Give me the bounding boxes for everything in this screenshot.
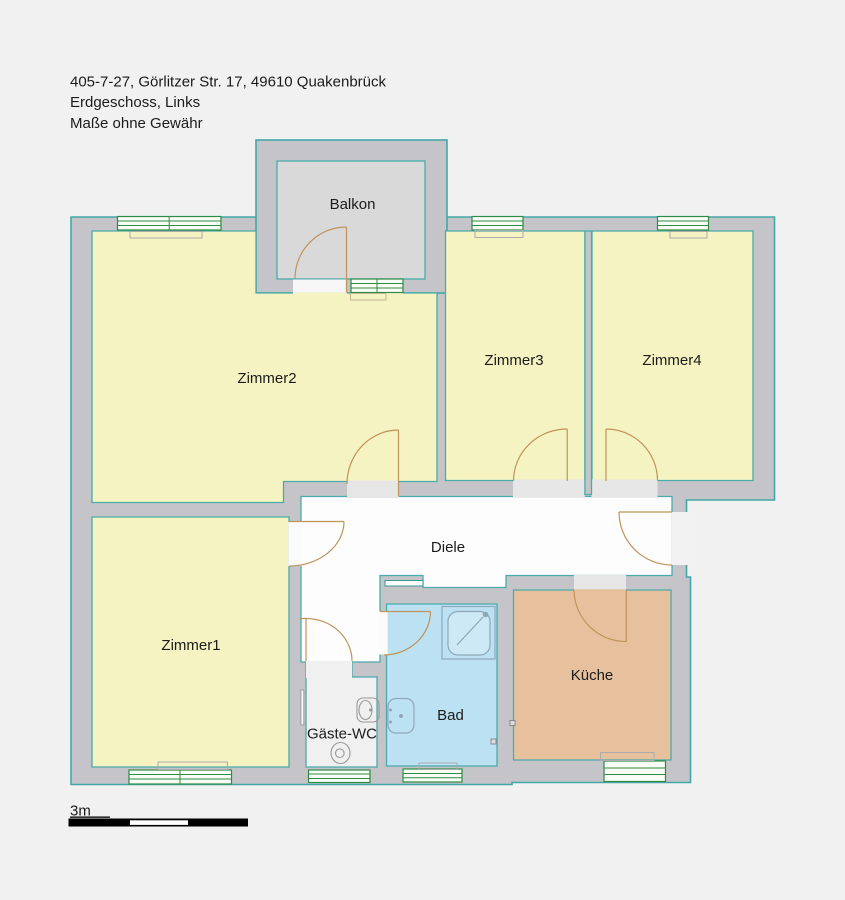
svg-text:Zimmer4: Zimmer4 [642,352,701,369]
svg-text:Balkon: Balkon [330,196,376,213]
svg-text:Zimmer1: Zimmer1 [161,637,220,654]
svg-text:Bad: Bad [437,707,464,724]
svg-text:Erdgeschoss, Links: Erdgeschoss, Links [70,94,200,111]
svg-text:Zimmer2: Zimmer2 [237,370,296,387]
svg-text:Gäste-WC: Gäste-WC [307,726,377,743]
svg-text:Zimmer3: Zimmer3 [484,352,543,369]
svg-text:405-7-27, Görlitzer Str. 17, 4: 405-7-27, Görlitzer Str. 17, 49610 Quake… [70,74,387,91]
svg-text:Diele: Diele [431,539,465,556]
svg-text:Maße ohne Gewähr: Maße ohne Gewähr [70,115,203,132]
svg-text:Küche: Küche [571,667,614,684]
